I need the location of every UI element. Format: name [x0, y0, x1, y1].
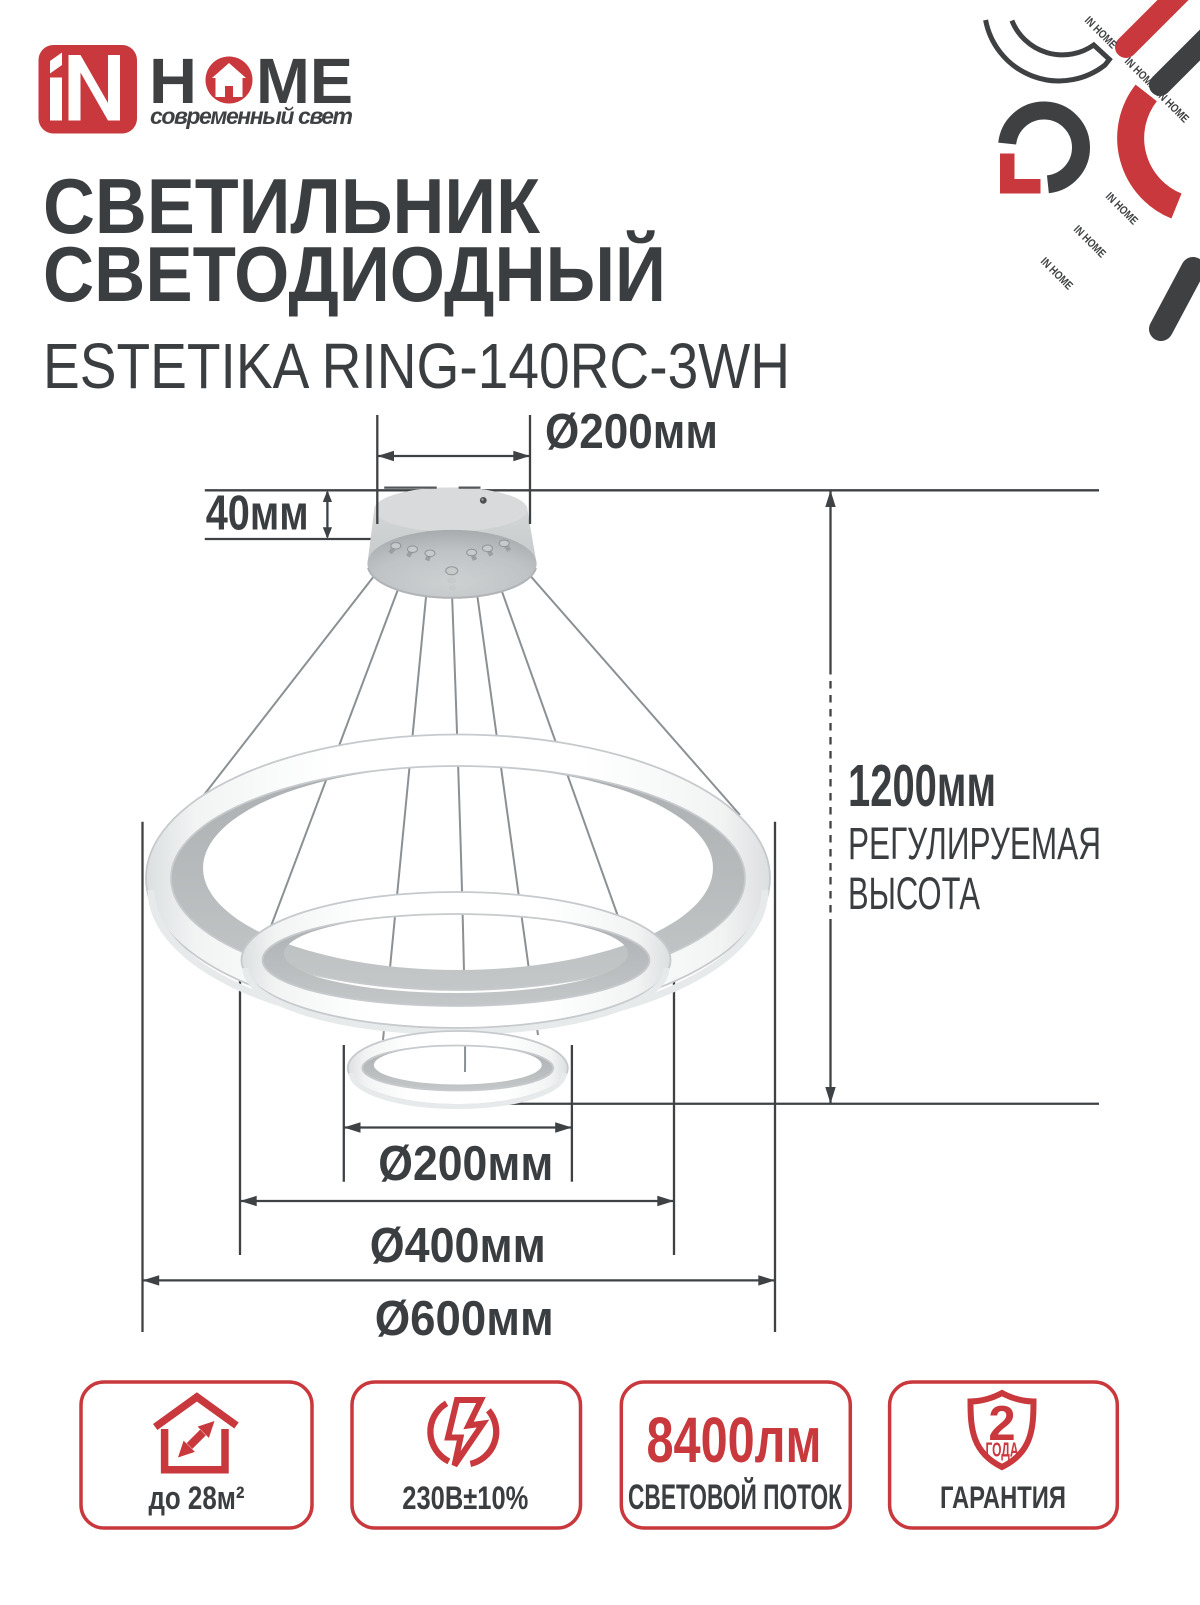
svg-text:РЕГУЛИРУЕМАЯ: РЕГУЛИРУЕМАЯ: [848, 818, 1101, 869]
svg-text:1200мм: 1200мм: [848, 753, 996, 819]
svg-text:до 28м²: до 28м²: [149, 1480, 245, 1516]
svg-text:ESTETIKA RING-140RC-3WH: ESTETIKA RING-140RC-3WH: [43, 330, 790, 402]
svg-text:Ø200мм: Ø200мм: [545, 405, 718, 459]
svg-text:Ø200мм: Ø200мм: [378, 1137, 553, 1191]
svg-text:ГОДА: ГОДА: [986, 1440, 1019, 1462]
svg-text:СВЕТОДИОДНЫЙ: СВЕТОДИОДНЫЙ: [43, 230, 666, 318]
svg-text:ГАРАНТИЯ: ГАРАНТИЯ: [940, 1479, 1066, 1515]
svg-text:230В±10%: 230В±10%: [402, 1480, 528, 1516]
svg-text:Ø400мм: Ø400мм: [370, 1219, 546, 1273]
svg-text:СВЕТОВОЙ ПОТОК: СВЕТОВОЙ ПОТОК: [628, 1477, 842, 1517]
svg-text:8400лм: 8400лм: [647, 1404, 822, 1476]
svg-text:ВЫСОТА: ВЫСОТА: [848, 868, 980, 919]
svg-text:Ø600мм: Ø600мм: [375, 1292, 554, 1346]
svg-text:современный свет: современный свет: [150, 103, 353, 129]
svg-text:40мм: 40мм: [206, 487, 309, 541]
